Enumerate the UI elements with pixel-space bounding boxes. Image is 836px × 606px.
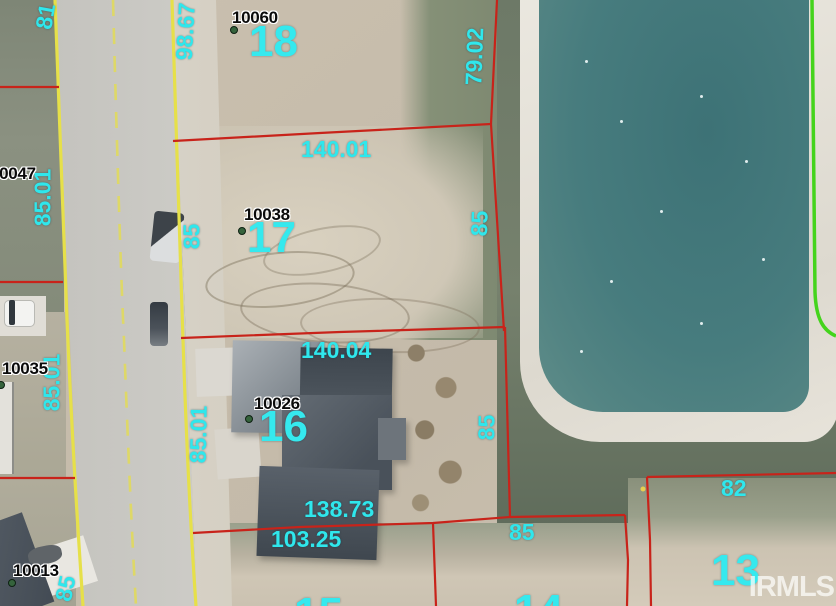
bird-dot [610, 280, 613, 283]
lot16-driveway [195, 347, 245, 397]
parcel-point-10026 [245, 415, 253, 423]
parcel-id-00047: 00047 [0, 165, 36, 182]
bird-dot [762, 258, 765, 261]
dim-79-02: 79.02 [462, 27, 487, 85]
aerial-map: 81 98.67 79.02 85.01 85 140.01 85 85.01 … [0, 0, 836, 606]
dim-85-lot17-right: 85 [468, 210, 492, 236]
white-car-windshield [9, 300, 15, 325]
dark-truck [150, 302, 168, 346]
bottom-dirt-strip [180, 523, 640, 606]
dim-81: 81 [32, 2, 59, 31]
lot-number-14-partial: 14 [514, 589, 563, 606]
parcel-point-10013 [8, 579, 16, 587]
parcel-id-10026: 10026 [254, 395, 300, 412]
bird-dot [620, 120, 623, 123]
bird-dot [580, 350, 583, 353]
dim-138-73: 138.73 [304, 498, 374, 521]
lot-number-15-partial: 15 [294, 592, 343, 606]
grass-west-strip [0, 0, 64, 312]
bird-dot [700, 95, 703, 98]
bird-dot [660, 210, 663, 213]
parcel-point-10060 [230, 26, 238, 34]
dim-140-04: 140.04 [301, 339, 371, 362]
bird-dot [700, 322, 703, 325]
parcel-id-10035: 10035 [2, 360, 48, 377]
dim-85-lot17-left: 85 [180, 224, 203, 250]
dim-85-bottom: 85 [509, 521, 535, 544]
parcel-id-10013: 10013 [13, 562, 59, 579]
irmls-watermark: IRMLS [749, 573, 834, 602]
bird-dot [585, 60, 588, 63]
dirt-piles [395, 330, 480, 522]
dim-85-lot16-right: 85 [475, 415, 498, 441]
house-left-edge-wall [0, 382, 14, 474]
bird-dot [745, 160, 748, 163]
parcel-id-10060: 10060 [232, 9, 278, 26]
dim-103-25: 103.25 [271, 528, 341, 551]
dim-98-67: 98.67 [173, 2, 199, 61]
lot16-walkway [214, 427, 261, 480]
parcel-id-10038: 10038 [244, 206, 290, 223]
dim-140-01: 140.01 [301, 138, 371, 161]
parcel-point-10038 [238, 227, 246, 235]
dim-82: 82 [721, 477, 747, 500]
dim-85-01-lot16: 85.01 [187, 406, 211, 464]
